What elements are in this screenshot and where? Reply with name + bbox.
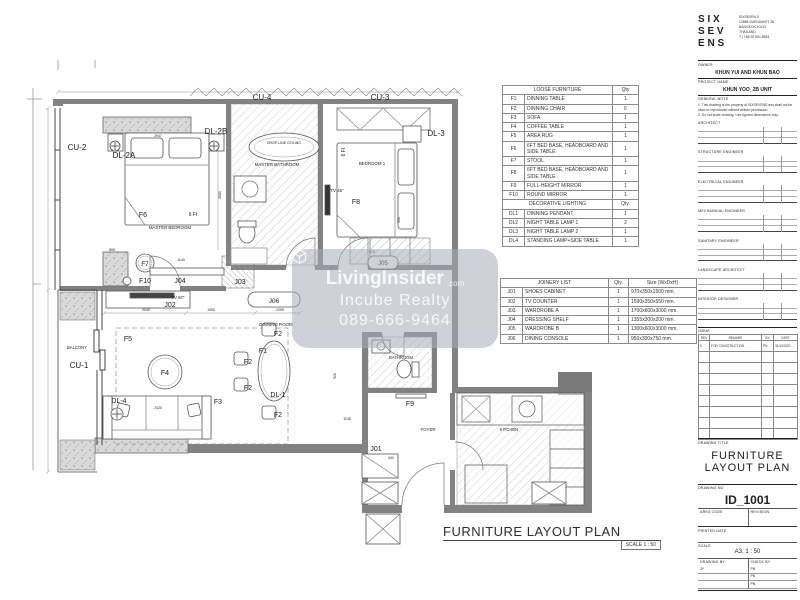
plan-label: F4 <box>161 370 169 377</box>
plan-label: F5 <box>124 336 132 343</box>
item-code: DL4 <box>503 237 525 246</box>
item-code: F4 <box>503 123 525 132</box>
divider <box>698 78 797 79</box>
consultant-sign-table <box>698 273 797 290</box>
divider <box>698 438 797 439</box>
plan-label: J02 <box>164 302 175 309</box>
sign-row <box>698 285 797 291</box>
item-desc: DINING CONSOLE <box>523 334 609 343</box>
table-row: DL4STANDING LAMP+SIDE TABLE1 <box>503 237 639 246</box>
item-code: J04 <box>501 316 523 325</box>
item-desc: TV COUNTER <box>523 297 609 306</box>
item-qty: 1 <box>609 288 629 297</box>
item-desc: NIGHT TABLE LAMP 2 <box>525 228 613 237</box>
plan-label: J03 <box>234 279 245 286</box>
issue-cell <box>762 407 774 418</box>
table-row: DL2NIGHT TABLE LAMP 12 <box>503 218 639 227</box>
item-qty: 1 <box>613 209 639 218</box>
item-code: F2 <box>503 104 525 113</box>
owner-label: OWNER <box>698 63 797 67</box>
title-block: S I XS E VE N S SIXSEVEN.S12888 SUKHUMVI… <box>698 0 797 600</box>
table-row: F7STOOL1 <box>503 157 639 166</box>
issue-cell <box>774 418 798 429</box>
plan-label: DL-4 <box>111 398 126 405</box>
plan-label: DL-2B <box>205 127 228 136</box>
item-code: F9 <box>503 181 525 190</box>
table-row: F3SOFA1 <box>503 113 639 122</box>
item-desc: WARDROBE A <box>523 306 609 315</box>
item-code: J06 <box>501 334 523 343</box>
item-size: 1590x350x550 mm. <box>629 297 697 306</box>
item-desc: DRESSING SHELF <box>523 316 609 325</box>
check-by-label: CHECK BY <box>748 559 798 566</box>
drawn-check-row: PN <box>698 581 797 589</box>
dining-furniture <box>234 292 300 419</box>
consultant-sign-table <box>698 156 797 173</box>
issue-cell <box>699 385 710 396</box>
issue-cell <box>699 374 710 385</box>
plan-label: TV 46" <box>330 188 344 193</box>
note-line: 1. This drawing is the property of SIXSE… <box>698 103 797 113</box>
item-qty: 1 <box>609 306 629 315</box>
plan-label: F7 <box>141 261 149 268</box>
firm-address: SIXSEVEN.S12888 SUKHUMVIT 38BANGKOK 1011… <box>739 14 774 49</box>
item-qty: 1 <box>613 95 639 104</box>
item-desc: DINNING TABLE <box>525 95 613 104</box>
plan-label: BEDROOM 1 <box>359 161 386 166</box>
consultant-label: MECHANICAL ENGINEER <box>698 209 797 213</box>
drawn-check-row: PN <box>698 574 797 582</box>
plan-label: DROP-LINE CEILING <box>267 141 301 145</box>
issue-empty-row <box>699 396 798 407</box>
issue-cell <box>699 418 710 429</box>
item-code: J02 <box>501 297 523 306</box>
drawn-check-labels: DRAWING BY CHECK BY <box>698 559 797 566</box>
item-code: J01 <box>501 288 523 297</box>
plan-label: FOYER <box>420 427 435 432</box>
firm-logo: S I XS E VE N S SIXSEVEN.S12888 SUKHUMVI… <box>698 14 797 49</box>
qty-header: Qty. <box>613 200 639 209</box>
issue-cell <box>774 385 798 396</box>
plan-label: F10 <box>139 278 151 285</box>
plan-label: 2295 <box>276 308 284 312</box>
consultant-section: STRUCTURE ENGINEER <box>698 150 797 179</box>
issue-cell: FOR CONSTRUCTION <box>710 341 762 352</box>
plan-label: 540 <box>388 456 394 460</box>
item-code: F10 <box>503 191 525 200</box>
issue-empty-row <box>699 418 798 429</box>
item-desc: 6FT BED BASE, HEADBOARD AND SIDE TABLE <box>525 141 613 157</box>
plan-label: F6 <box>139 212 147 219</box>
consultant-label: ELECTRICAL ENGINEER <box>698 180 797 184</box>
area-revision-box: AREA CODE REVISION <box>698 508 797 527</box>
issue-cell <box>762 374 774 385</box>
watermark-phone: 089-666-9464 <box>339 312 451 330</box>
plan-label: CU-1 <box>70 361 89 370</box>
issue-cell <box>710 363 762 374</box>
consultant-section: SANITARY ENGINEER <box>698 239 797 268</box>
drawing-title-label: DRAWING TITLE <box>698 441 797 445</box>
sign-row <box>698 226 797 232</box>
sheet-ticks <box>27 60 95 470</box>
general-notes: 1. This drawing is the property of SIXSE… <box>698 103 797 118</box>
item-desc: STANDING LAMP+SIDE TABLE <box>525 237 613 246</box>
general-note-label: GENERAL NOTE <box>698 97 797 101</box>
item-qty: 2 <box>613 218 639 227</box>
drawn-by-value: JY <box>698 566 748 574</box>
plan-title-block: FURNITURE LAYOUT PLAN SCALE 1 : 50 <box>443 524 661 550</box>
plan-label: J06 <box>269 298 280 305</box>
drawn-check-row: JYPN <box>698 566 797 574</box>
item-qty: 1 <box>613 228 639 237</box>
logo-letter-row: S I X <box>698 14 734 25</box>
plan-label: 1138 <box>343 417 351 421</box>
issue-cell: PN <box>762 341 774 352</box>
item-qty: 1 <box>609 297 629 306</box>
address-line: T | +66 92 891 8894 <box>739 35 774 40</box>
consultant-section: MECHANICAL ENGINEER <box>698 209 797 238</box>
consultant-sections: ARCHITECTSTRUCTURE ENGINEERELECTRICAL EN… <box>698 121 797 327</box>
drawn-by-value <box>698 581 748 589</box>
item-size: 1355x300x200 mm. <box>629 316 697 325</box>
issue-cell <box>710 407 762 418</box>
plan-label: 920 <box>333 373 337 379</box>
watermark-brand-line: LivingInsider .com <box>326 268 465 290</box>
item-desc: ROUND MIRROR <box>525 191 613 200</box>
table-row: J03WARDROBE A11700x600x3000 mm. <box>501 306 697 315</box>
consultant-label: STRUCTURE ENGINEER <box>698 150 797 154</box>
item-code: DL1 <box>503 209 525 218</box>
project-name-value: KHUN YOO_2B UNIT <box>698 87 797 93</box>
item-code: DL2 <box>503 218 525 227</box>
item-desc: FULL-HEIGHT MIRROR <box>525 181 613 190</box>
sign-row <box>698 167 797 173</box>
item-qty: 1 <box>609 334 629 343</box>
qty-header: Qty <box>613 86 639 95</box>
item-qty: 1 <box>609 325 629 334</box>
table-row: J01SHOES CABINET1970x350x1500 mm. <box>501 288 697 297</box>
issue-cell <box>710 418 762 429</box>
plan-label: F1 <box>259 348 267 355</box>
table-row: F2DINNING CHAIR6 <box>503 104 639 113</box>
drawing-sheet: CU-2DL-2ADL-2BDL-3CU-4CU-3F66 FtMASTER B… <box>0 0 800 600</box>
plan-label: 1953 <box>207 308 215 312</box>
issue-cell <box>699 363 710 374</box>
item-desc: DINNING PENDANT <box>525 209 613 218</box>
table-header-row: LOOSE FURNITUREQty <box>503 86 639 95</box>
issue-cell <box>699 396 710 407</box>
drawing-title-line1: FURNITURE <box>698 450 797 462</box>
plan-label: 2947 <box>154 134 162 138</box>
item-code: DL3 <box>503 228 525 237</box>
livinginsider-cube-icon <box>292 249 307 264</box>
item-desc: AREA RUG <box>525 132 613 141</box>
issue-cell <box>710 374 762 385</box>
joinery-list-table: JOINERY LISTQty.Size (WxDxH)J01SHOES CAB… <box>500 278 697 344</box>
item-code: F5 <box>503 132 525 141</box>
consultant-section: ARCHITECT <box>698 121 797 150</box>
issue-cell: 31/10/2021 <box>774 341 798 352</box>
consultant-label: ARCHITECT <box>698 121 797 125</box>
plan-label: 2420 <box>154 406 162 410</box>
consultant-section: INTERIOR DESIGNER <box>698 297 797 326</box>
issue-empty-row <box>699 352 798 363</box>
issue-row: 0FOR CONSTRUCTIONPN31/10/2021 <box>699 341 798 352</box>
table-row: F1DINNING TABLE1 <box>503 95 639 104</box>
drawing-by-label: DRAWING BY <box>698 559 748 566</box>
plan-label: BALCONY <box>67 345 87 350</box>
printed-date-label: PRINTED DATE <box>698 529 797 533</box>
item-qty: 6 <box>613 104 639 113</box>
table-row: F9FULL-HEIGHT MIRROR1 <box>503 181 639 190</box>
plan-label: MASTER BATHROOM <box>255 162 300 167</box>
sign-row <box>698 314 797 320</box>
window-walls <box>55 108 105 472</box>
divider <box>698 60 797 61</box>
divider <box>698 590 797 591</box>
project-name-label: PROJECT NAME <box>698 80 797 84</box>
item-code: J03 <box>501 306 523 315</box>
item-code: F1 <box>503 95 525 104</box>
plan-label: F2 <box>274 412 282 419</box>
bedroom1-bed <box>325 126 421 237</box>
table-title: JOINERY LIST <box>501 279 609 288</box>
issue-empty-row <box>699 374 798 385</box>
plan-label: 855 <box>109 248 115 252</box>
check-by-value: PN <box>748 581 798 589</box>
table-title: LOOSE FURNITURE <box>503 86 613 95</box>
issue-cell <box>762 352 774 363</box>
table-row: F86FT BED BASE, HEADBOARD AND SIDE TABLE… <box>503 166 639 182</box>
plan-label: KITCHEN <box>500 427 518 432</box>
table-row: DL3NIGHT TABLE LAMP 21 <box>503 228 639 237</box>
table-row: F66FT BED BASE, HEADBOARD AND SIDE TABLE… <box>503 141 639 157</box>
consultant-sign-table <box>698 244 797 261</box>
item-qty: 1 <box>613 237 639 246</box>
item-qty: 1 <box>613 113 639 122</box>
sign-row <box>698 256 797 262</box>
item-code: F7 <box>503 157 525 166</box>
issue-cell: 0 <box>699 341 710 352</box>
table-row: J02TV COUNTER11590x350x550 mm. <box>501 297 697 306</box>
issue-empty-row <box>699 385 798 396</box>
logo-letter-row: S E V <box>698 26 734 37</box>
plan-label: F2 <box>244 359 252 366</box>
note-line: 2. Do not scale drawing. Use figured dim… <box>698 113 797 118</box>
item-desc: SHOES CABINET <box>523 288 609 297</box>
item-size: 1700x600x3000 mm. <box>629 306 697 315</box>
issue-cell <box>699 407 710 418</box>
check-by-value: PN <box>748 566 798 574</box>
plan-label: 2080 <box>218 191 222 199</box>
consultant-section: LANDSCAPE ARCHITECT <box>698 268 797 297</box>
item-desc: 6FT BED BASE, HEADBOARD AND SIDE TABLE <box>525 166 613 182</box>
issue-cell <box>762 385 774 396</box>
issue-empty-row <box>699 363 798 374</box>
watermark-agency: Incube Realty <box>340 292 451 310</box>
table-row: DL1DINNING PENDANT1 <box>503 209 639 218</box>
item-code: J05 <box>501 325 523 334</box>
issue-cell <box>774 352 798 363</box>
plan-label: F3 <box>214 399 222 406</box>
scale-value: A3, 1 : 50 <box>698 549 797 555</box>
item-qty: 1 <box>613 191 639 200</box>
sign-row <box>698 197 797 203</box>
plan-label: 6 Ft <box>189 212 198 218</box>
table-header-row: JOINERY LISTQty.Size (WxDxH) <box>501 279 697 288</box>
issue-cell <box>710 385 762 396</box>
owner-value: KHUN YUI AND KHUN BAO <box>698 70 797 76</box>
item-size: 950x300x750 mm. <box>629 334 697 343</box>
item-desc: NIGHT TABLE LAMP 1 <box>525 218 613 227</box>
table-row: F5AREA RUG1 <box>503 132 639 141</box>
item-code: F8 <box>503 166 525 182</box>
issue-cell <box>774 396 798 407</box>
plan-label: F2 <box>274 331 282 338</box>
item-desc: WARDROBE B <box>523 325 609 334</box>
divider <box>698 95 797 96</box>
table-header-row: DECORATIVE LIGHTINGQty. <box>503 200 639 209</box>
issue-cell <box>710 352 762 363</box>
item-desc: COFFEE TABLE <box>525 123 613 132</box>
plan-label: 6 Ft <box>341 147 347 156</box>
issue-cell <box>762 363 774 374</box>
plan-label: DINNING ROOM <box>259 322 293 327</box>
issue-cell <box>699 352 710 363</box>
watermark-brand-suffix: .com <box>447 279 464 288</box>
item-qty: 1 <box>609 316 629 325</box>
plan-label: J01 <box>370 446 381 453</box>
plan-label: BATHROOM <box>389 355 413 360</box>
master-bed <box>108 133 224 225</box>
plan-label: CU-2 <box>68 143 87 152</box>
drawn-by-value <box>698 574 748 582</box>
plan-label: TV 50" <box>172 295 185 300</box>
consultant-sign-table <box>698 303 797 320</box>
table-row: J06DINING CONSOLE1950x300x750 mm. <box>501 334 697 343</box>
plan-label: F9 <box>406 401 414 408</box>
plan-label: F8 <box>352 199 360 206</box>
consultant-section: ELECTRICAL ENGINEER <box>698 180 797 209</box>
size-header: Size (WxDxH) <box>629 279 697 288</box>
sign-row <box>698 138 797 144</box>
plan-label: J04 <box>174 278 185 285</box>
watermark: LivingInsider .com Incube Realty 089-666… <box>292 249 498 348</box>
consultant-label: SANITARY ENGINEER <box>698 239 797 243</box>
drawn-check-rows: JYPNPNPN <box>698 566 797 589</box>
plan-label: F2 <box>244 385 252 392</box>
consultant-sign-table <box>698 127 797 144</box>
revision-label: REVISION <box>748 509 798 526</box>
divider <box>698 484 797 485</box>
item-qty: 1 <box>613 157 639 166</box>
issue-cell <box>762 418 774 429</box>
divider <box>698 542 797 543</box>
issue-cell <box>710 396 762 407</box>
plan-label: 900 <box>397 217 401 223</box>
divider <box>698 327 797 328</box>
loose-furniture-table: LOOSE FURNITUREQtyF1DINNING TABLE1F2DINN… <box>502 85 639 247</box>
issue-label: ISSUE <box>698 329 797 333</box>
issue-table: REVREMARKBYDATE0FOR CONSTRUCTIONPN31/10/… <box>698 334 798 440</box>
item-desc: STOOL <box>525 157 613 166</box>
plan-label: 2040 <box>142 308 150 312</box>
item-code: F6 <box>503 141 525 157</box>
scale-label: SCALE <box>698 544 797 548</box>
item-qty: 1 <box>613 141 639 157</box>
drawing-no-label: DRAWING NO <box>698 486 797 490</box>
consultant-label: INTERIOR DESIGNER <box>698 297 797 301</box>
plan-label: MASTER BEDROOM <box>149 225 192 230</box>
consultant-sign-table <box>698 215 797 232</box>
consultant-sign-table <box>698 185 797 202</box>
drawing-title-line2: LAYOUT PLAN <box>698 462 797 474</box>
table-title: DECORATIVE LIGHTING <box>503 200 613 209</box>
logo-letter-row: E N S <box>698 38 734 49</box>
consultant-label: LANDSCAPE ARCHITECT <box>698 268 797 272</box>
plan-label: DL-3 <box>427 129 445 138</box>
plan-title: FURNITURE LAYOUT PLAN <box>443 524 661 541</box>
item-qty: 1 <box>613 181 639 190</box>
issue-empty-row <box>699 407 798 418</box>
qty-header: Qty. <box>609 279 629 288</box>
item-desc: DINNING CHAIR <box>525 104 613 113</box>
issue-cell <box>774 407 798 418</box>
item-qty: 1 <box>613 132 639 141</box>
plan-label: DL-1 <box>270 392 285 399</box>
plan-label: DL-2A <box>113 151 136 160</box>
table-row: J04DRESSING SHELF11355x300x200 mm. <box>501 316 697 325</box>
firm-logo-letters: S I XS E VE N S <box>698 14 734 49</box>
plan-label: 1140 <box>177 258 185 262</box>
item-size: 970x350x1500 mm. <box>629 288 697 297</box>
table-row: F4COFFEE TABLE1 <box>503 123 639 132</box>
item-qty: 1 <box>613 123 639 132</box>
issue-cell <box>774 363 798 374</box>
item-code: F3 <box>503 113 525 122</box>
item-qty: 1 <box>613 166 639 182</box>
issue-cell <box>762 396 774 407</box>
check-by-value: PN <box>748 574 798 582</box>
item-desc: SOFA <box>525 113 613 122</box>
watermark-brand: LivingInsider <box>326 268 444 290</box>
table-row: F10ROUND MIRROR1 <box>503 191 639 200</box>
drawing-no-value: ID_1001 <box>698 493 797 507</box>
area-code-label: AREA CODE <box>698 509 748 526</box>
table-row: J05WARDROBE B11300x600x3000 mm. <box>501 325 697 334</box>
item-size: 1300x600x3000 mm. <box>629 325 697 334</box>
plan-scale-note: SCALE 1 : 50 <box>621 541 661 550</box>
issue-cell <box>774 374 798 385</box>
